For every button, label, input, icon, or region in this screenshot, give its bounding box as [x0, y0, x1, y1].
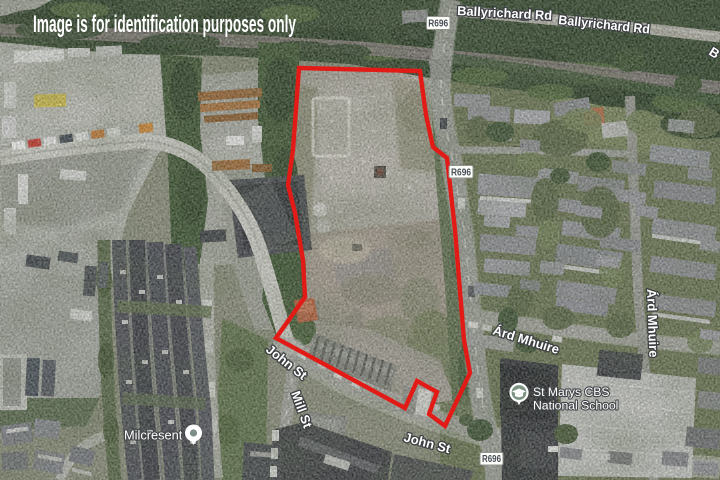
svg-text:Milcresent: Milcresent	[124, 428, 183, 443]
svg-text:St Marys CBS: St Marys CBS	[533, 385, 610, 399]
svg-text:R696: R696	[482, 454, 501, 465]
svg-text:Image is for identification pu: Image is for identification purposes onl…	[33, 11, 296, 38]
svg-text:Árd Mhuire: Árd Mhuire	[644, 289, 661, 358]
svg-text:National School: National School	[533, 399, 618, 413]
svg-text:R696: R696	[451, 167, 471, 178]
svg-text:R696: R696	[428, 19, 448, 30]
